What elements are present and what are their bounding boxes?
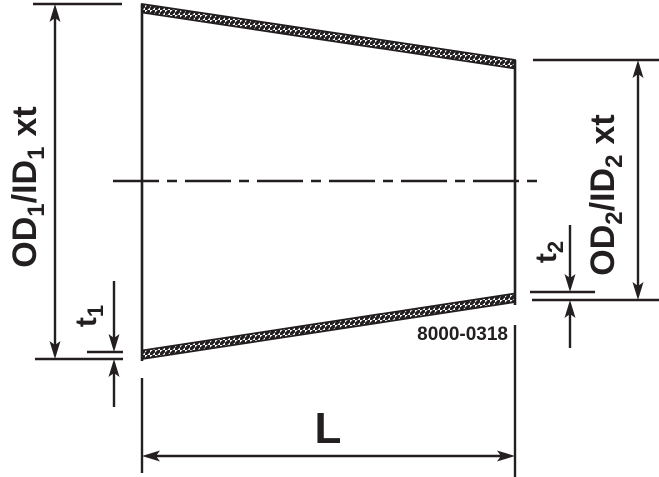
drawing-number: 8000-0318 (417, 324, 508, 345)
t2-label: t2 (530, 241, 568, 263)
length-label: L (315, 404, 342, 453)
concentric-reducer-drawing: OD1/ID1xt t1 OD2/ID2xt t2 (0, 0, 659, 477)
t1-label: t1 (70, 305, 108, 327)
od1-label: OD1/ID1xt (6, 106, 50, 267)
top-wall-section (142, 4, 515, 69)
reducer-body (113, 4, 545, 361)
od2-label: OD2/ID2xt (584, 114, 628, 275)
dimension-t1: t1 (70, 281, 123, 407)
technical-drawing-canvas: OD1/ID1xt t1 OD2/ID2xt t2 (0, 0, 659, 477)
